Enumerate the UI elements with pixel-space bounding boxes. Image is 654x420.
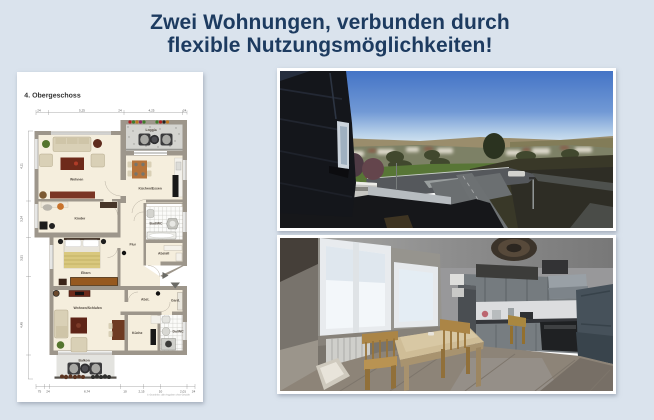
svg-text:Abst.: Abst. bbox=[141, 297, 150, 301]
svg-text:Du/WC: Du/WC bbox=[173, 330, 185, 334]
svg-text:Flur: Flur bbox=[130, 243, 137, 247]
svg-text:2,15: 2,15 bbox=[138, 390, 144, 394]
svg-text:Bad/WC: Bad/WC bbox=[150, 222, 164, 226]
svg-text:© Grundriss: alle Angaben ohne: © Grundriss: alle Angaben ohne Gewähr bbox=[147, 394, 190, 397]
svg-text:24: 24 bbox=[118, 109, 122, 113]
svg-text:Loggia: Loggia bbox=[146, 128, 157, 132]
svg-text:4,11: 4,11 bbox=[20, 163, 24, 169]
svg-text:75: 75 bbox=[38, 390, 42, 394]
svg-text:Küchen/Essen: Küchen/Essen bbox=[139, 187, 162, 191]
svg-text:6,74: 6,74 bbox=[84, 390, 90, 394]
svg-text:4. Obergeschoss: 4. Obergeschoss bbox=[24, 92, 81, 100]
svg-text:24: 24 bbox=[192, 390, 196, 394]
svg-text:Wohnen: Wohnen bbox=[70, 178, 83, 182]
svg-text:Kinder: Kinder bbox=[75, 217, 86, 221]
svg-text:24: 24 bbox=[183, 109, 187, 113]
svg-text:10: 10 bbox=[123, 390, 127, 394]
svg-text:3,51: 3,51 bbox=[20, 255, 24, 261]
svg-text:4,45: 4,45 bbox=[20, 322, 24, 328]
svg-text:Abstell: Abstell bbox=[158, 252, 169, 256]
svg-text:4,25: 4,25 bbox=[148, 109, 154, 113]
svg-text:24: 24 bbox=[46, 390, 50, 394]
svg-text:Wohnen/Schlafen: Wohnen/Schlafen bbox=[74, 306, 102, 310]
svg-text:Gard.: Gard. bbox=[171, 298, 180, 302]
svg-text:24: 24 bbox=[37, 109, 41, 113]
svg-text:Balkon: Balkon bbox=[79, 359, 90, 363]
svg-text:Küche: Küche bbox=[132, 331, 142, 335]
svg-text:Eltern: Eltern bbox=[81, 271, 91, 275]
svg-text:5,25: 5,25 bbox=[79, 109, 85, 113]
svg-text:3,24: 3,24 bbox=[20, 216, 24, 222]
